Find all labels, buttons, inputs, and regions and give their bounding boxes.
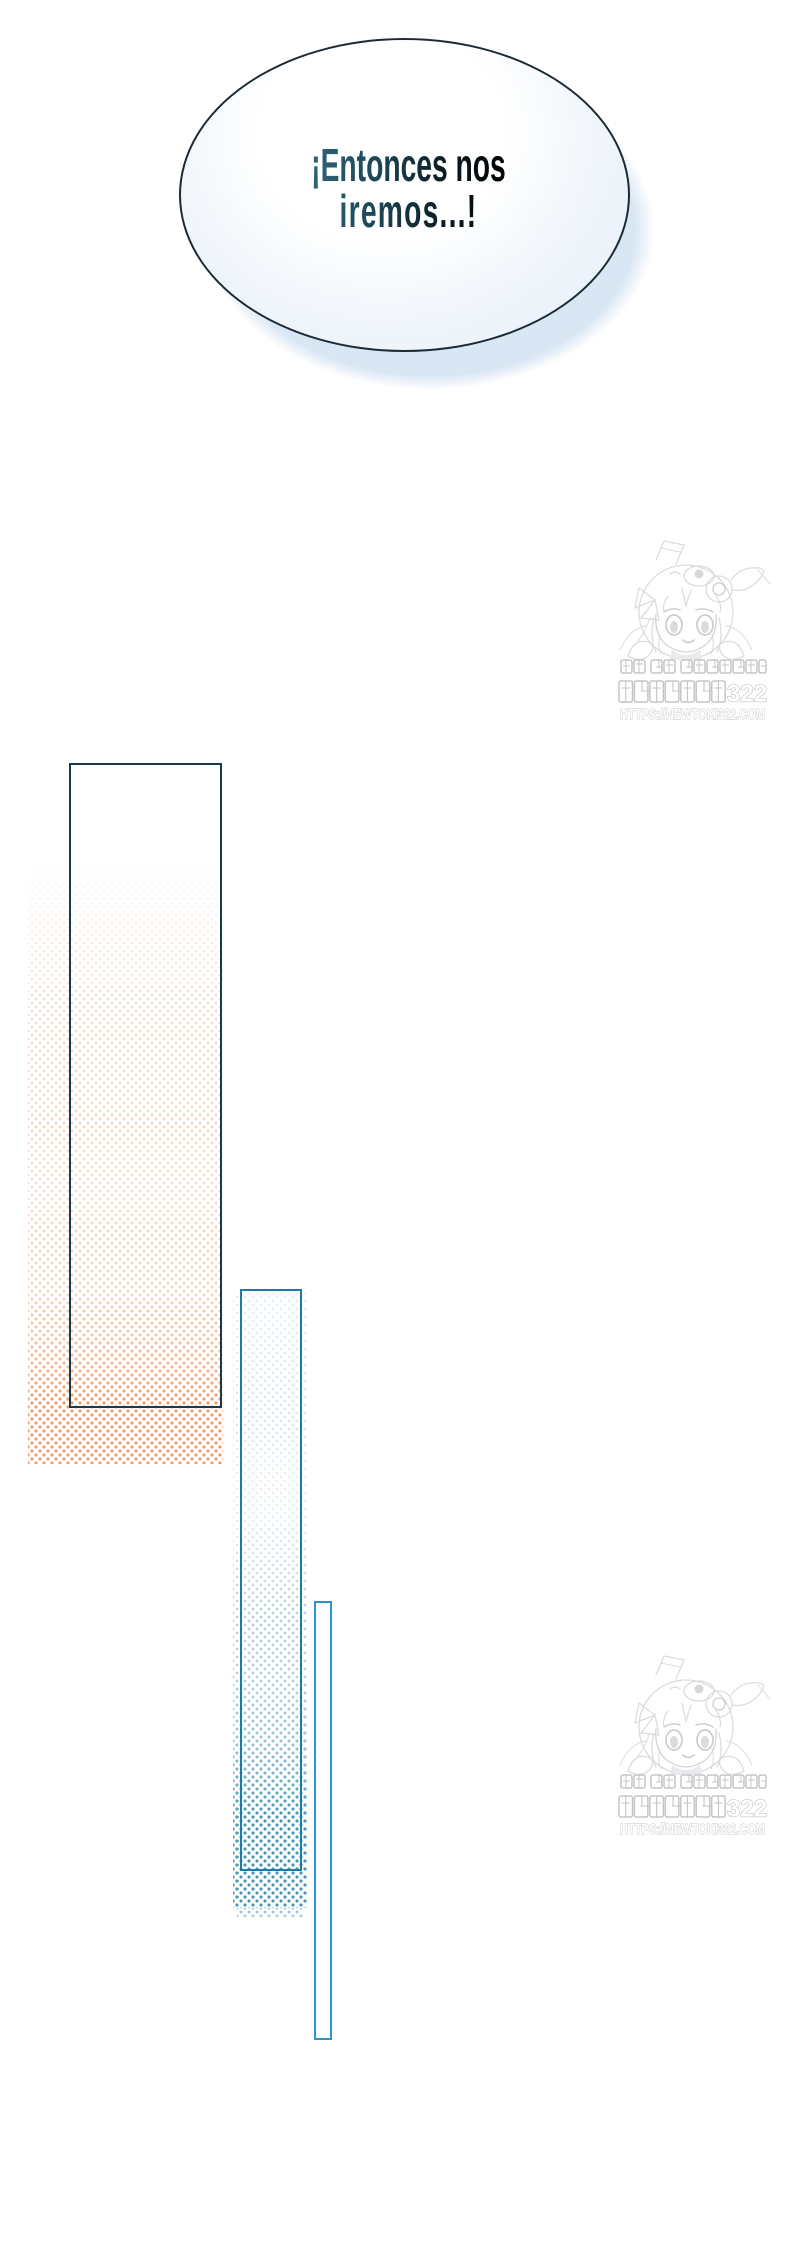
svg-text:HTTPS://NEWTOKI322.COM: HTTPS://NEWTOKI322.COM xyxy=(620,707,765,723)
svg-text:322: 322 xyxy=(727,681,767,708)
